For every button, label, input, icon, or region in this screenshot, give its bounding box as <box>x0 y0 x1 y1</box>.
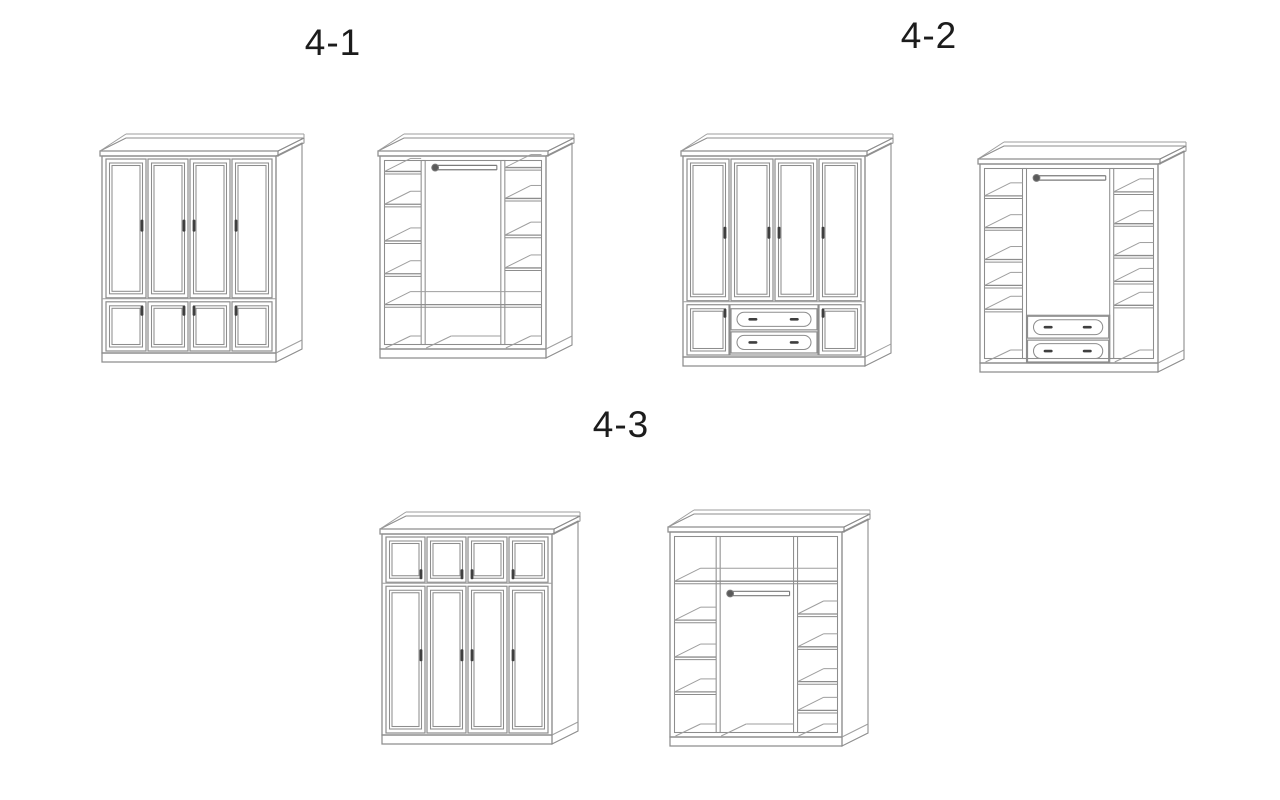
group-label-4-1: 4-1 <box>305 22 361 64</box>
group-label-4-2: 4-2 <box>901 15 957 57</box>
wardrobe-4-1-exterior-drawing <box>98 128 308 364</box>
wardrobe-4-1-interior-drawing <box>376 128 578 360</box>
wardrobe-4-2-exterior-drawing <box>679 128 897 368</box>
group-label-4-3: 4-3 <box>593 404 649 446</box>
wardrobe-4-3-interior-drawing <box>666 504 874 748</box>
wardrobe-4-3-exterior-drawing <box>378 506 584 746</box>
wardrobe-diagram-canvas: 4-1 4-2 4-3 <box>0 0 1280 800</box>
wardrobe-4-2-interior-drawing <box>976 136 1190 374</box>
